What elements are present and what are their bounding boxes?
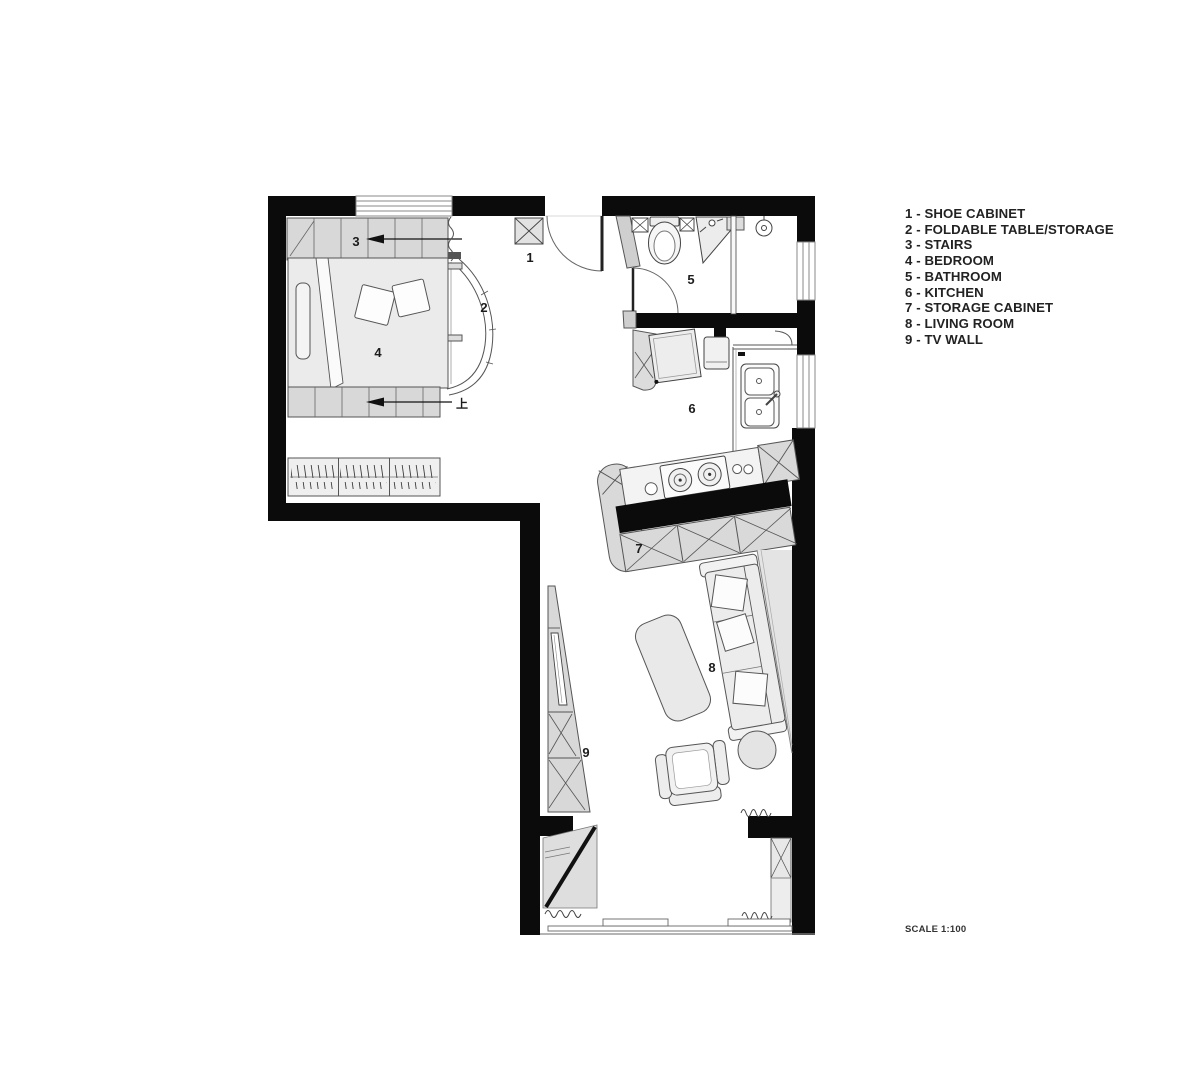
washing-machine bbox=[704, 337, 729, 369]
legend-item: 2 - FOLDABLE TABLE/STORAGE bbox=[905, 222, 1114, 238]
label-storage-cabinet: 7 bbox=[635, 541, 642, 556]
floor-plan-page: 1 2 3 4 5 6 7 8 9 上 1 - SHOE CABINET 2 -… bbox=[0, 0, 1188, 1080]
headboard bbox=[296, 283, 310, 359]
label-stairs-up: 上 bbox=[456, 396, 468, 411]
window-right-upper bbox=[797, 242, 815, 300]
legend: 1 - SHOE CABINET 2 - FOLDABLE TABLE/STOR… bbox=[905, 206, 1114, 347]
label-stairs: 3 bbox=[352, 234, 359, 249]
label-tv-wall: 9 bbox=[582, 745, 589, 760]
floor-plan-drawing: 1 2 3 4 5 6 7 8 9 上 bbox=[0, 0, 1188, 1080]
right-column-cabinet bbox=[771, 838, 791, 922]
legend-item: 4 - BEDROOM bbox=[905, 253, 1114, 269]
side-table bbox=[738, 731, 776, 769]
armchair bbox=[654, 740, 732, 807]
shower-head bbox=[756, 216, 772, 236]
coffee-table bbox=[631, 611, 714, 725]
legend-item: 5 - BATHROOM bbox=[905, 269, 1114, 285]
legend-item: 7 - STORAGE CABINET bbox=[905, 300, 1114, 316]
legend-item: 8 - LIVING ROOM bbox=[905, 316, 1114, 332]
legend-item: 9 - TV WALL bbox=[905, 332, 1114, 348]
label-bedroom: 4 bbox=[374, 345, 382, 360]
window-right-lower bbox=[797, 355, 815, 428]
entry-door bbox=[545, 216, 602, 271]
bed bbox=[288, 258, 451, 389]
tv-wall-cabinet bbox=[548, 586, 590, 812]
shower-partition bbox=[731, 216, 736, 314]
legend-item: 6 - KITCHEN bbox=[905, 285, 1114, 301]
sliding-window bbox=[540, 919, 815, 934]
label-kitchen: 6 bbox=[688, 401, 695, 416]
foldable-table bbox=[447, 252, 496, 395]
fridge bbox=[648, 329, 701, 384]
label-bathroom: 5 bbox=[687, 272, 694, 287]
label-foldable-table: 2 bbox=[480, 300, 487, 315]
kitchen bbox=[633, 329, 797, 455]
kitchen-sink bbox=[741, 364, 780, 428]
stairs-upper bbox=[287, 217, 462, 261]
window-top bbox=[356, 196, 452, 216]
label-shoe-cabinet: 1 bbox=[526, 250, 533, 265]
toilet bbox=[649, 217, 681, 264]
understairs-storage bbox=[543, 825, 597, 908]
legend-item: 3 - STAIRS bbox=[905, 237, 1114, 253]
shoe-cabinet bbox=[515, 218, 543, 244]
scale-note: SCALE 1:100 bbox=[905, 924, 966, 935]
label-living-room: 8 bbox=[708, 660, 715, 675]
pillow bbox=[392, 279, 430, 317]
pillow bbox=[354, 284, 395, 325]
wardrobe bbox=[288, 458, 440, 496]
legend-item: 1 - SHOE CABINET bbox=[905, 206, 1114, 222]
stairs-lower bbox=[288, 387, 452, 417]
